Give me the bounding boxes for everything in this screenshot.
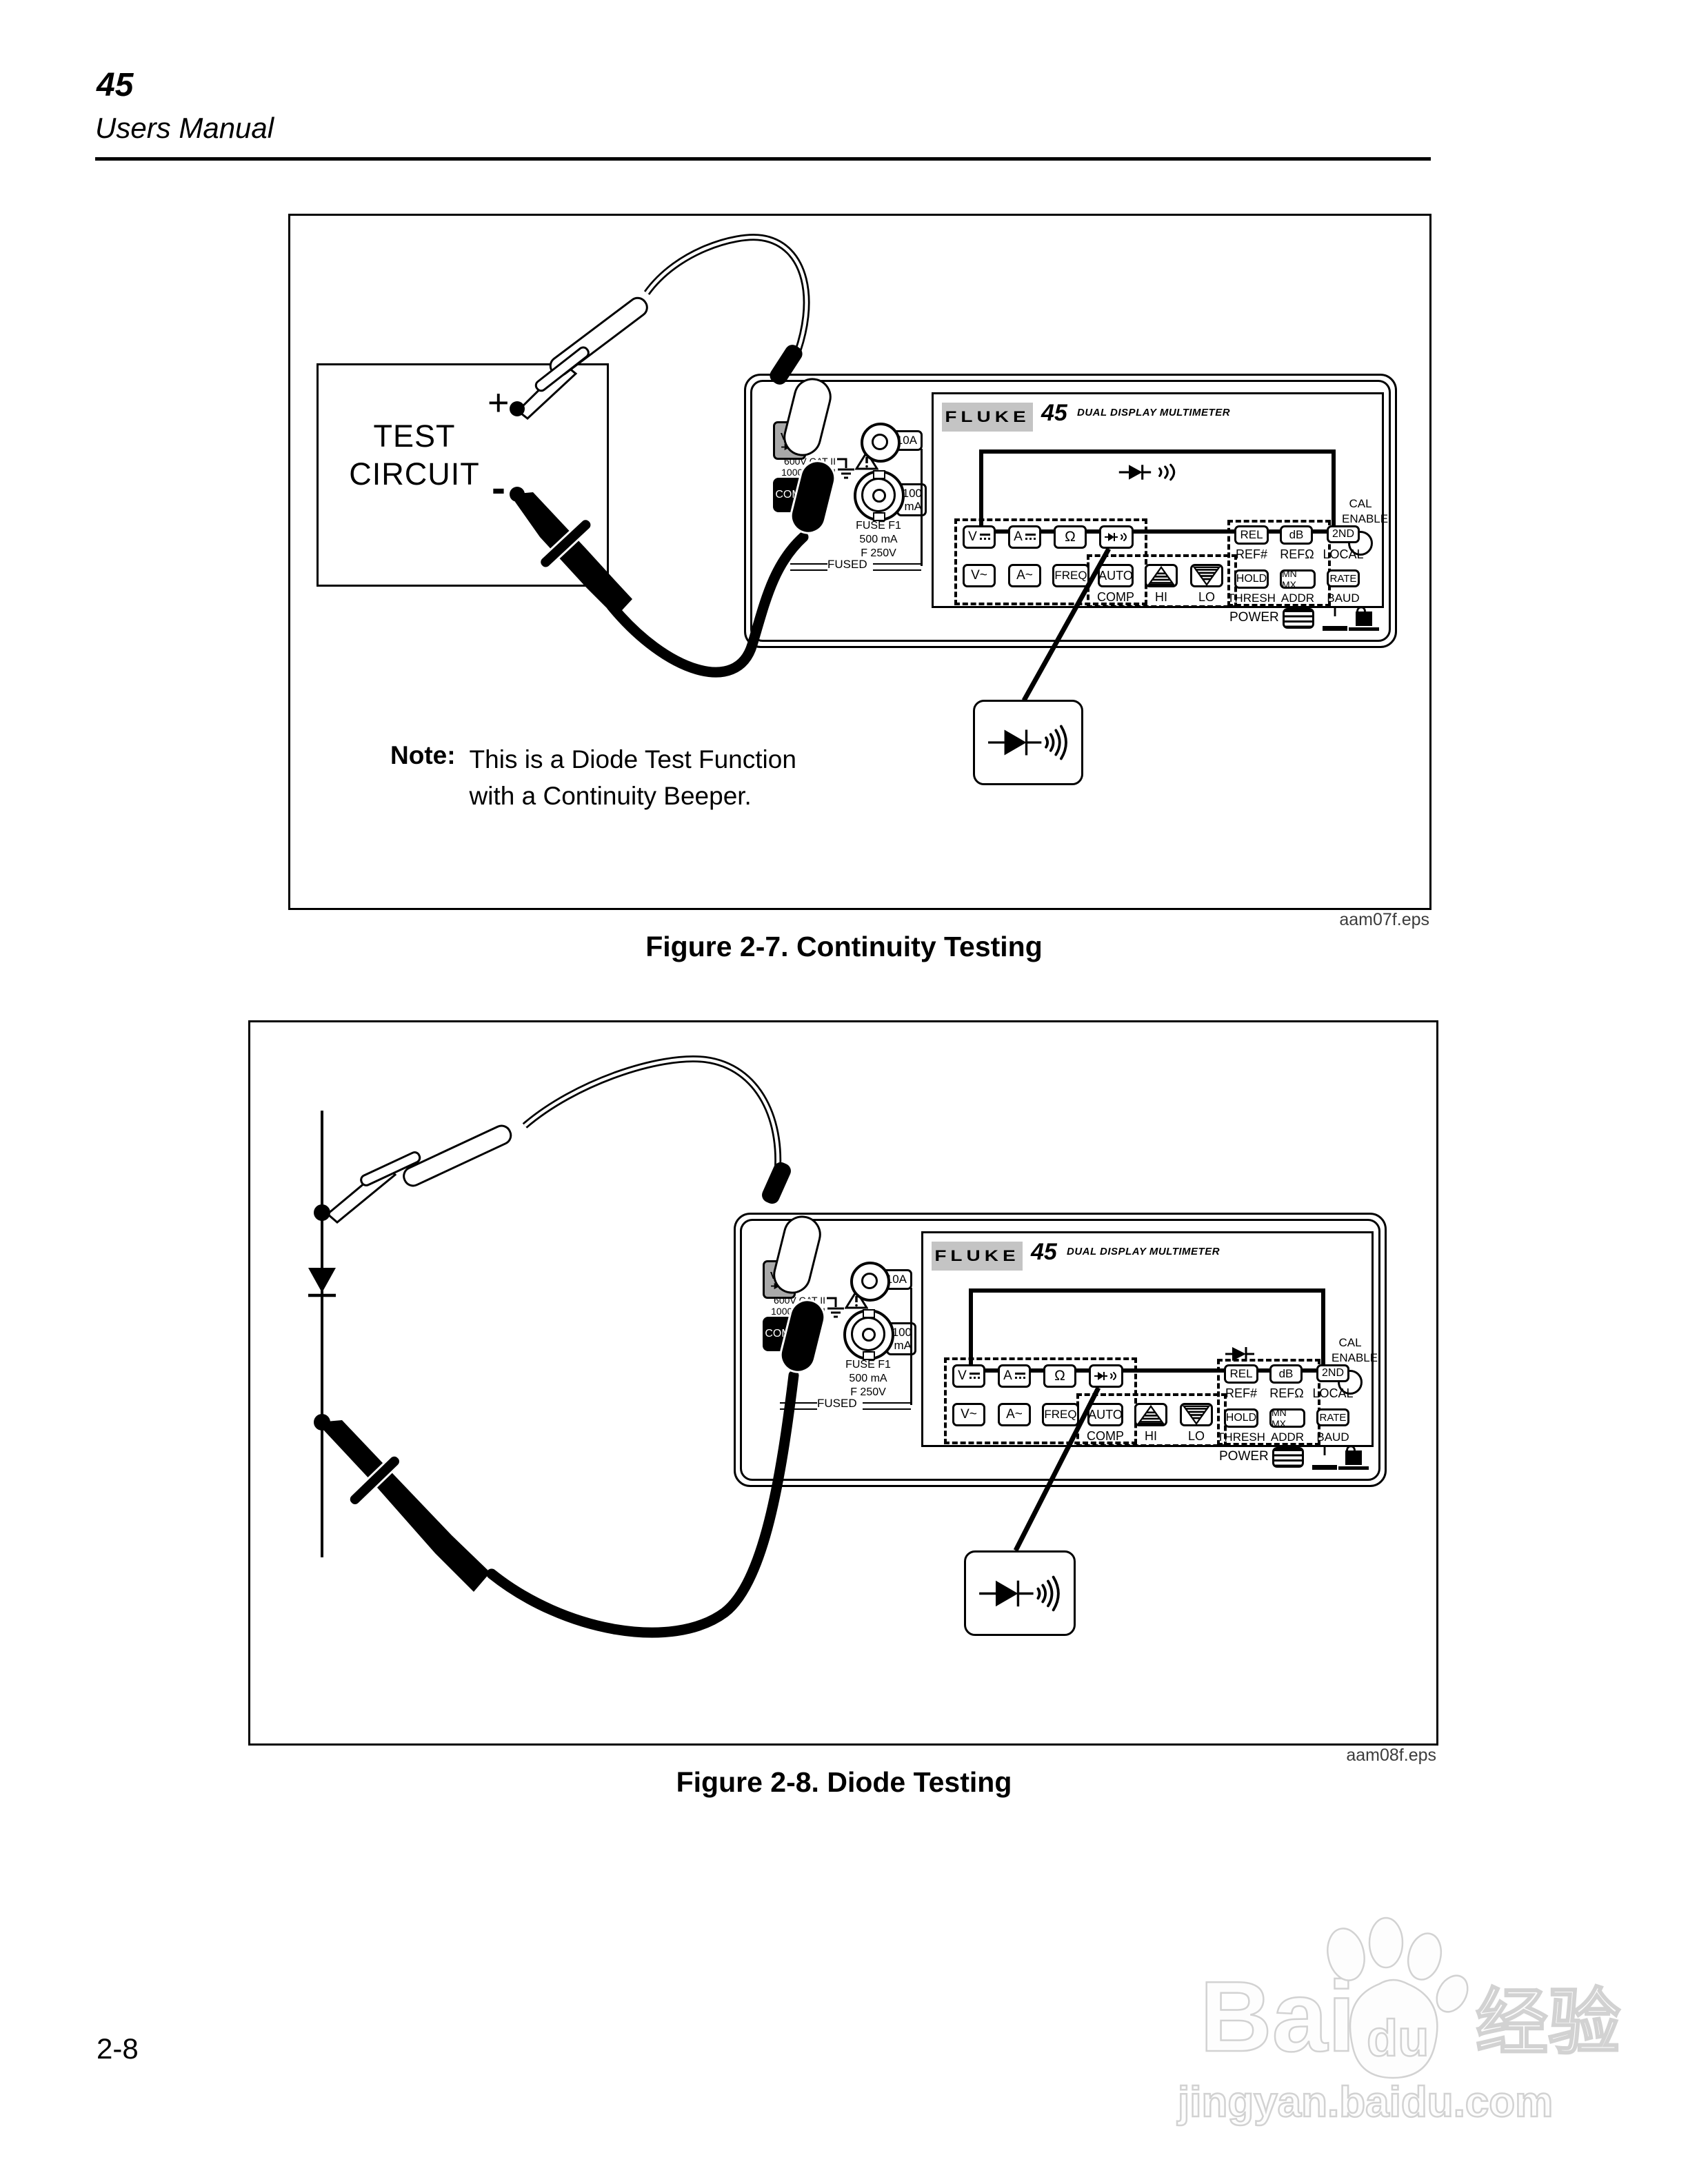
test-circuit-label: TEST CIRCUIT	[328, 417, 501, 493]
comp-label: COMP	[1085, 1429, 1126, 1444]
100ma-input-jack	[854, 470, 905, 521]
probe-handle	[401, 1123, 514, 1189]
figure2-eps-label: aam08f.eps	[1271, 1746, 1436, 1766]
fluke-logo: FLUKE	[932, 1242, 1023, 1271]
hi-label: HI	[1134, 1429, 1167, 1444]
meter-type-label: DUAL DISPLAY MULTIMETER	[1077, 407, 1230, 418]
power-off-icon	[1356, 611, 1372, 626]
auto-button: AUTO	[1087, 1403, 1123, 1426]
diode-beeper-icon	[1104, 532, 1129, 543]
watermark-url: jingyan.baidu.com	[1177, 2079, 1553, 2126]
thresh-label: THRESH	[1226, 591, 1277, 605]
hi-button	[1134, 1403, 1167, 1426]
diode-beeper-callout	[973, 700, 1083, 785]
power-button	[1283, 608, 1314, 629]
strain-relief	[760, 1160, 794, 1206]
front-panel: FLUKE 45 DUAL DISPLAY MULTIMETER	[921, 1231, 1374, 1447]
addr-label: ADDR	[1277, 591, 1318, 605]
cat1-rating: 1000V CAT I	[752, 467, 836, 478]
ref-ohm-label: REFΩ	[1276, 547, 1318, 562]
minus-terminal-label: -	[492, 464, 505, 512]
power-on-icon	[1312, 1465, 1337, 1470]
2nd-button: 2ND	[1327, 525, 1360, 543]
power-on-icon	[1323, 626, 1347, 631]
auto-button: AUTO	[1098, 564, 1134, 587]
power-label: POWER	[1229, 610, 1279, 625]
cat-rating-label: 600V CAT II 1000V CAT I	[741, 1295, 825, 1317]
10a-input-jack	[861, 423, 901, 463]
plus-terminal-label: +	[488, 381, 510, 424]
diode-icon	[781, 443, 798, 451]
up-triangle-icon	[1137, 1405, 1165, 1425]
local-label: LOCAL	[1309, 1386, 1356, 1401]
vdc-button: V	[952, 1364, 985, 1388]
freq-button: FREQ	[1042, 1403, 1079, 1426]
diode-beeper-callout	[964, 1550, 1076, 1636]
aac-button: A~	[1008, 564, 1041, 587]
baidu-watermark: Bai du 经验 jingyan.baidu.com	[1152, 1910, 1676, 2137]
lo-button	[1190, 564, 1223, 587]
baud-label: BAUD	[1321, 591, 1365, 605]
dc-symbol-icon	[1015, 1373, 1025, 1380]
diode-beeper-button	[1099, 525, 1134, 549]
comp-label: COMP	[1095, 590, 1136, 605]
manual-page: 45 Users Manual TEST CIRCUIT + - V Ω	[0, 0, 1688, 2184]
cal-enable-label: CAL ENABLE	[1332, 1335, 1369, 1366]
thresh-label: THRESH	[1216, 1430, 1267, 1444]
hold-button: HOLD	[1224, 1408, 1258, 1428]
com-input-jack: COM	[773, 478, 803, 512]
mnmx-button: MN MX	[1269, 1408, 1305, 1428]
adc-button: A	[998, 1364, 1031, 1388]
addr-label: ADDR	[1267, 1430, 1308, 1444]
fused-bracket-left	[790, 563, 827, 571]
vdc-button: V	[963, 525, 996, 549]
ohms-button: Ω	[1043, 1364, 1076, 1388]
figure-2-8: V Ω 600V CAT II 1000V CAT I	[248, 1020, 1438, 1746]
diode-icon	[771, 1282, 787, 1290]
power-button	[1272, 1447, 1304, 1468]
on-symbol: I	[1316, 1444, 1333, 1459]
diode-beeper-icon	[976, 1563, 1064, 1624]
on-symbol: I	[1327, 605, 1343, 620]
mnmx-button: MN MX	[1280, 569, 1316, 589]
hi-label: HI	[1145, 590, 1178, 605]
cat2-rating: 600V CAT II	[752, 456, 836, 467]
db-button: dB	[1269, 1364, 1303, 1384]
watermark-paw-text: du	[1367, 2010, 1429, 2067]
dc-symbol-icon	[980, 534, 990, 541]
diode-beeper-icon	[985, 712, 1072, 773]
meter-type-label: DUAL DISPLAY MULTIMETER	[1067, 1246, 1220, 1257]
vohm-input-jack: V Ω	[763, 1260, 796, 1299]
fused-bracket-line	[921, 449, 923, 566]
power-off-base	[1349, 627, 1379, 631]
rate-button: RATE	[1327, 569, 1360, 587]
fused-bracket-left	[780, 1402, 817, 1410]
fuse-rating-label: FUSE F1 500 mA F 250V	[845, 519, 912, 560]
test-label: TEST	[328, 417, 501, 455]
db-button: dB	[1280, 525, 1313, 545]
lo-button	[1180, 1403, 1213, 1426]
vohm-jack-label: V Ω	[770, 1270, 788, 1282]
com-input-jack: COM	[763, 1317, 793, 1351]
lo-label: LO	[1190, 590, 1223, 605]
fused-bracket-line	[910, 1288, 912, 1405]
diode-beeper-button	[1089, 1364, 1123, 1388]
fused-label: FUSED	[817, 1397, 857, 1410]
note-text: Note: This is a Diode Test Function with…	[390, 741, 796, 814]
fuse-rating-label: FUSE F1 500 mA F 250V	[835, 1358, 901, 1399]
front-panel: FLUKE 45 DUAL DISPLAY MULTIMETER	[932, 392, 1384, 608]
probe-tip	[323, 1420, 490, 1592]
local-label: LOCAL	[1320, 547, 1367, 562]
diode-beeper-icon	[1094, 1371, 1118, 1382]
page-title: 45	[97, 66, 133, 104]
rel-button: REL	[1234, 525, 1269, 545]
vohm-input-jack: V Ω	[773, 421, 806, 460]
hold-button: HOLD	[1234, 569, 1269, 589]
vohm-jack-label: V Ω	[781, 431, 798, 443]
100ma-input-jack	[843, 1309, 894, 1360]
cat1-rating: 1000V CAT I	[741, 1306, 825, 1317]
aac-button: A~	[998, 1403, 1031, 1426]
vac-button: V~	[952, 1403, 985, 1426]
note-body: This is a Diode Test Function with a Con…	[470, 741, 796, 814]
ref-num-label: REF#	[1230, 547, 1273, 562]
probe-collar	[359, 1151, 421, 1186]
figure1-caption: Figure 2-7. Continuity Testing	[0, 931, 1688, 963]
diode-symbol	[308, 1268, 336, 1293]
watermark-brand: Bai	[1200, 1961, 1356, 2072]
cat-rating-label: 600V CAT II 1000V CAT I	[752, 456, 836, 478]
power-label: POWER	[1219, 1449, 1269, 1464]
probe-collar	[347, 1453, 403, 1508]
freq-button: FREQ	[1052, 564, 1089, 587]
hi-button	[1145, 564, 1178, 587]
figure1-eps-label: aam07f.eps	[1264, 910, 1429, 930]
multimeter: V Ω 600V CAT II 1000V CAT I	[750, 380, 1387, 638]
probe-tip	[328, 1166, 395, 1222]
power-off-base	[1338, 1466, 1369, 1470]
fused-bracket-right	[863, 1402, 911, 1410]
ref-ohm-label: REFΩ	[1265, 1386, 1308, 1401]
down-triangle-icon	[1193, 566, 1220, 586]
up-triangle-icon	[1147, 566, 1175, 586]
watermark-suffix: 经验	[1476, 1983, 1620, 2063]
cal-enable-label: CAL ENABLE	[1342, 496, 1379, 527]
model-number: 45	[1041, 400, 1067, 427]
ref-num-label: REF#	[1220, 1386, 1263, 1401]
circuit-label: CIRCUIT	[328, 455, 501, 493]
fused-bracket-right	[873, 563, 921, 571]
ohms-button: Ω	[1054, 525, 1087, 549]
multimeter: V Ω 600V CAT II 1000V CAT I	[740, 1219, 1376, 1477]
cathode-node-dot	[314, 1414, 330, 1430]
vac-button: V~	[963, 564, 996, 587]
fluke-logo: FLUKE	[942, 403, 1033, 432]
diode-beeper-display-icon	[1118, 461, 1198, 484]
down-triangle-icon	[1183, 1405, 1210, 1425]
rel-button: REL	[1224, 1364, 1258, 1384]
page-subtitle: Users Manual	[95, 112, 274, 145]
page-number: 2-8	[97, 2032, 139, 2065]
figure2-caption: Figure 2-8. Diode Testing	[0, 1766, 1688, 1799]
rate-button: RATE	[1316, 1408, 1349, 1426]
dc-symbol-icon	[1025, 534, 1036, 541]
cat2-rating: 600V CAT II	[741, 1295, 825, 1306]
figure-2-7: TEST CIRCUIT + - V Ω 600V CAT II 1000V C…	[288, 214, 1431, 910]
header-divider	[95, 157, 1431, 161]
fused-label: FUSED	[827, 558, 867, 572]
anode-node-dot	[314, 1204, 330, 1221]
model-number: 45	[1031, 1239, 1057, 1266]
power-off-icon	[1345, 1450, 1362, 1465]
2nd-button: 2ND	[1316, 1364, 1349, 1382]
baud-label: BAUD	[1311, 1430, 1355, 1444]
10a-input-jack	[850, 1262, 890, 1302]
adc-button: A	[1008, 525, 1041, 549]
dc-symbol-icon	[969, 1373, 980, 1380]
note-label: Note:	[390, 741, 456, 814]
lo-label: LO	[1180, 1429, 1213, 1444]
